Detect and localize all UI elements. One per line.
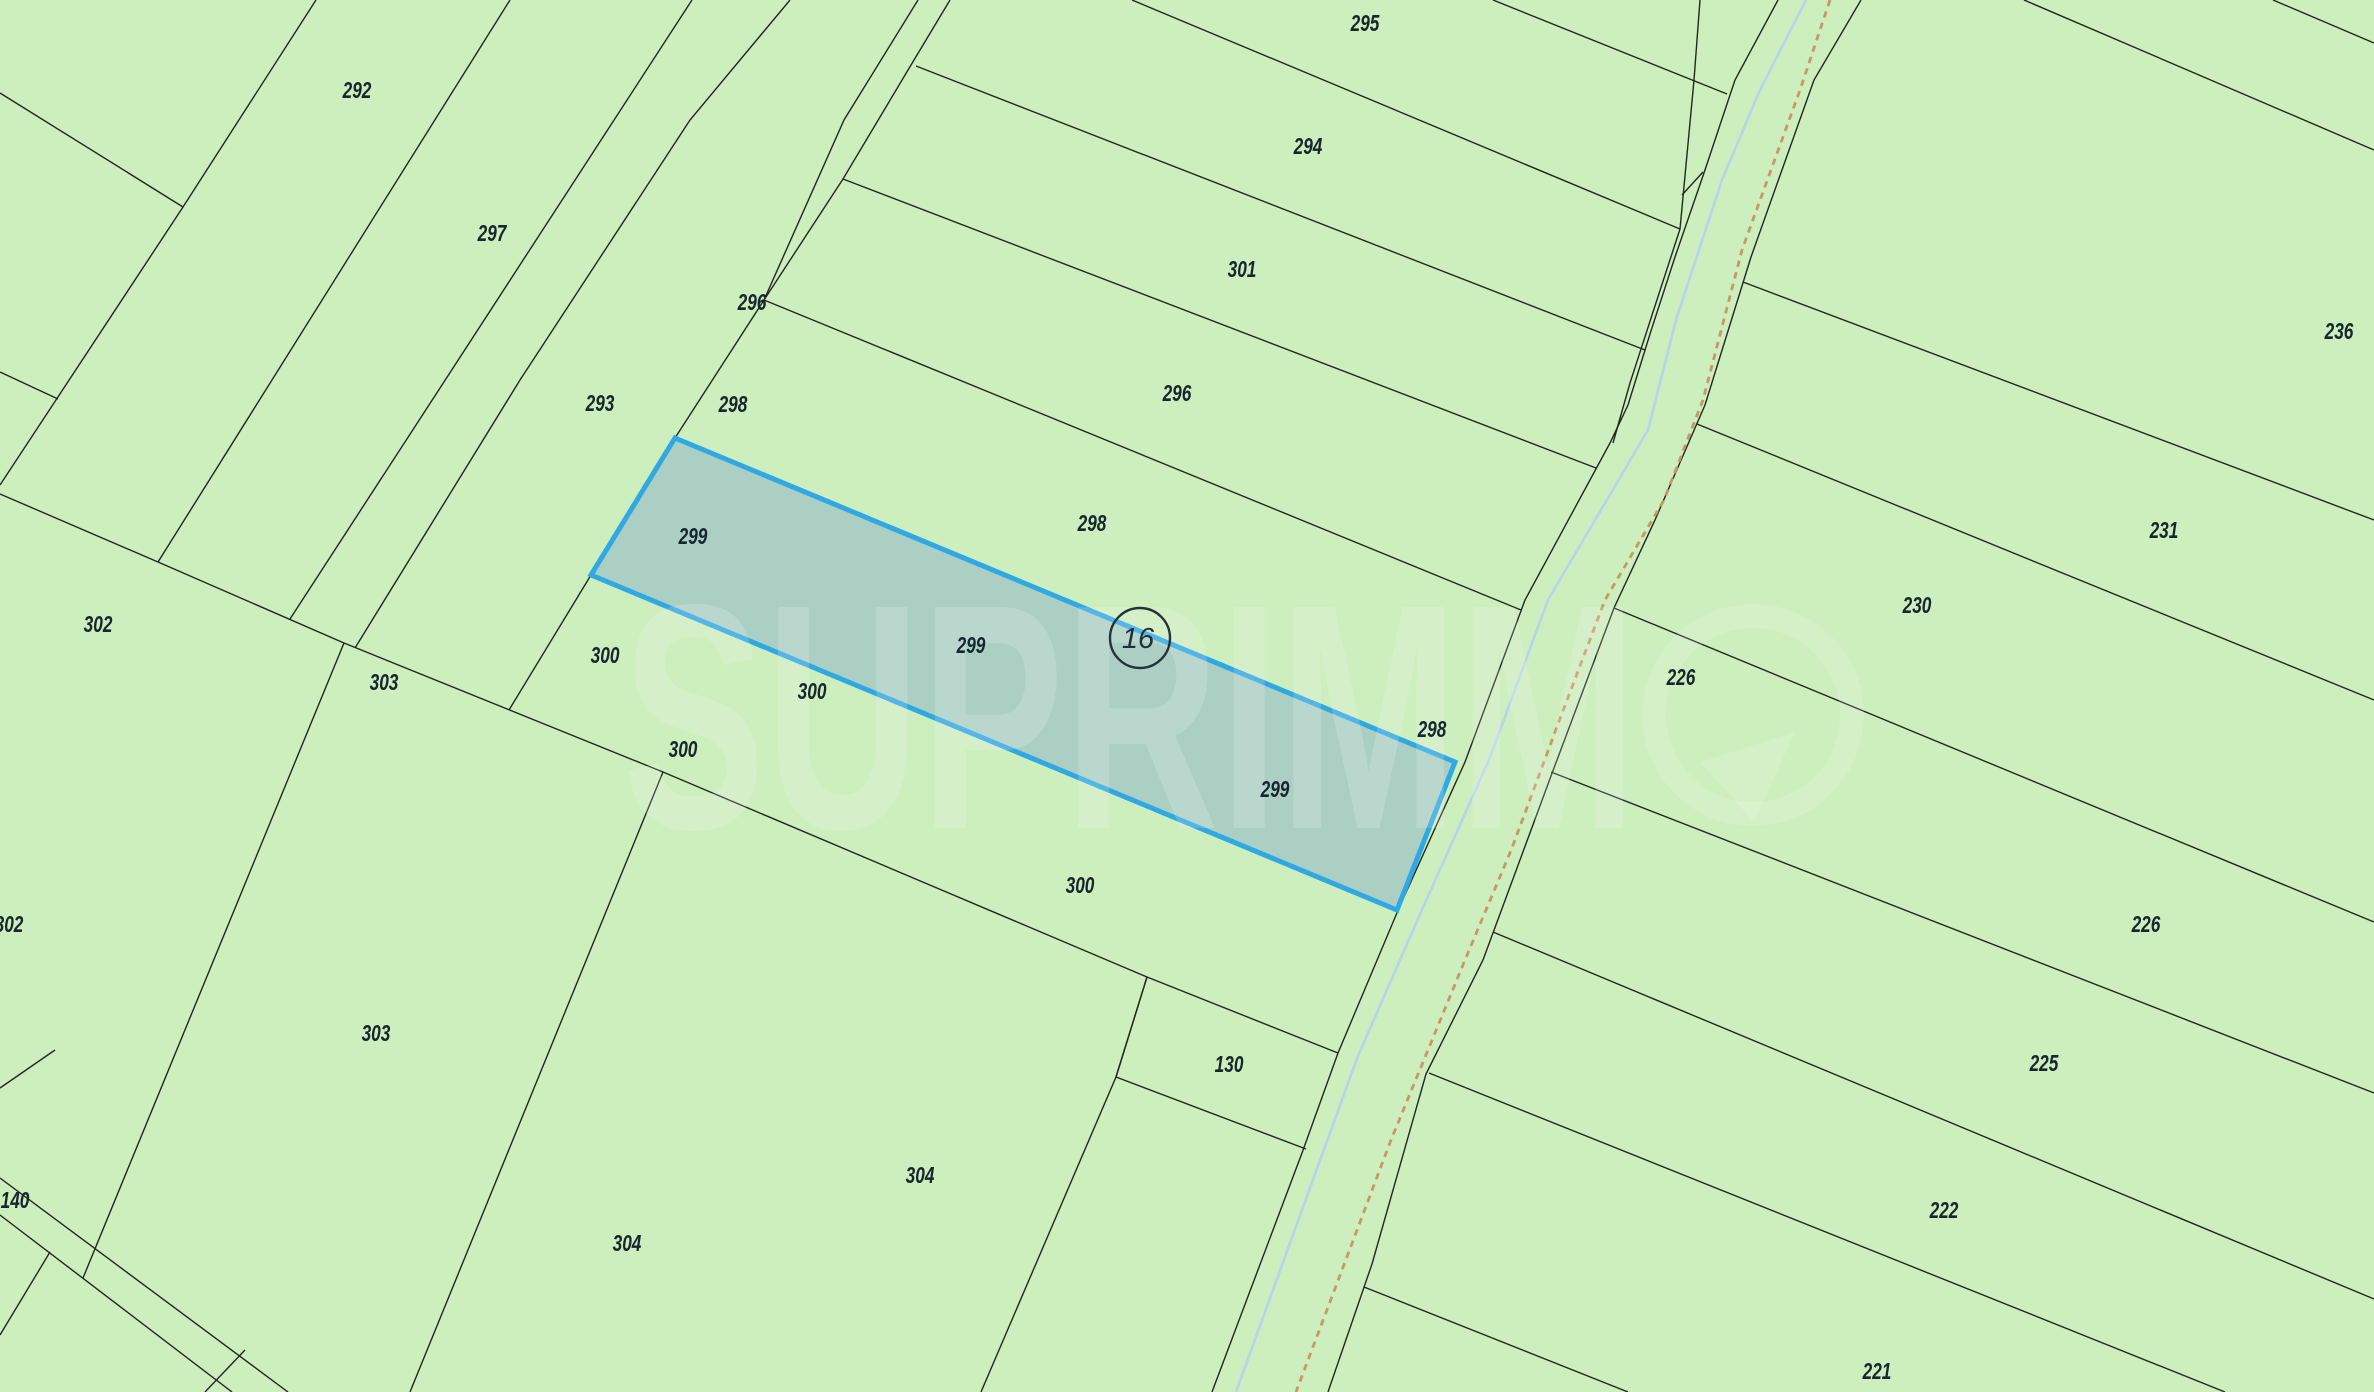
svg-text:297: 297 xyxy=(477,222,508,247)
svg-text:236: 236 xyxy=(2324,320,2354,345)
svg-text:295: 295 xyxy=(1350,12,1380,37)
svg-text:300: 300 xyxy=(591,644,620,669)
svg-text:300: 300 xyxy=(1066,874,1095,899)
svg-text:304: 304 xyxy=(613,1232,642,1257)
svg-text:304: 304 xyxy=(906,1164,935,1189)
svg-text:296: 296 xyxy=(1162,382,1192,407)
svg-text:292: 292 xyxy=(342,79,372,104)
svg-text:299: 299 xyxy=(678,525,708,550)
svg-text:221: 221 xyxy=(1862,1360,1892,1385)
svg-text:222: 222 xyxy=(1929,1199,1959,1224)
svg-text:298: 298 xyxy=(718,393,748,418)
svg-text:296: 296 xyxy=(737,291,767,316)
svg-text:231: 231 xyxy=(2149,519,2179,544)
svg-text:299: 299 xyxy=(1260,778,1290,803)
svg-text:300: 300 xyxy=(669,738,698,763)
svg-text:225: 225 xyxy=(2029,1052,2059,1077)
svg-text:299: 299 xyxy=(956,634,986,659)
svg-text:303: 303 xyxy=(362,1022,391,1047)
svg-text:301: 301 xyxy=(1228,258,1257,283)
svg-text:303: 303 xyxy=(370,671,399,696)
svg-text:230: 230 xyxy=(1902,594,1932,619)
svg-text:140: 140 xyxy=(1,1189,30,1214)
svg-text:302: 302 xyxy=(0,913,24,938)
svg-text:298: 298 xyxy=(1417,718,1447,743)
svg-text:SUPRIMM: SUPRIMM xyxy=(622,538,1638,896)
svg-text:226: 226 xyxy=(2131,913,2161,938)
svg-text:16: 16 xyxy=(1122,623,1155,655)
svg-text:298: 298 xyxy=(1077,512,1107,537)
svg-text:293: 293 xyxy=(585,392,615,417)
svg-text:294: 294 xyxy=(1293,135,1323,160)
svg-text:226: 226 xyxy=(1666,666,1696,691)
svg-text:130: 130 xyxy=(1215,1053,1244,1078)
svg-text:302: 302 xyxy=(84,613,113,638)
svg-text:300: 300 xyxy=(798,680,827,705)
